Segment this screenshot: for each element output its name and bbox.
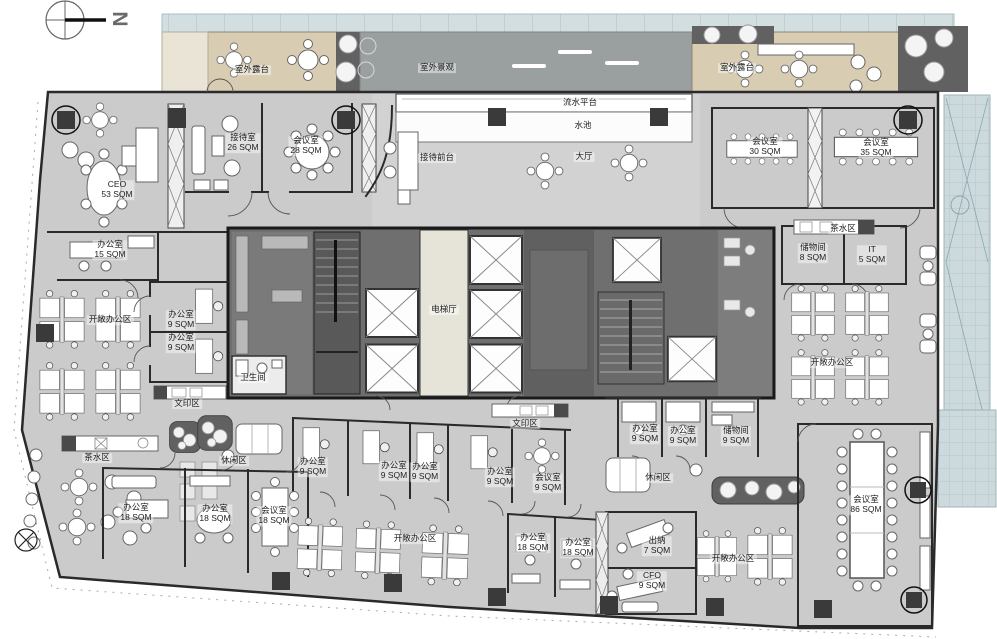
elevator-hall-floor [420,230,468,396]
elevator-5 [470,345,522,393]
water-feature [396,94,692,142]
outdoor-strip [162,14,954,32]
terrace-left [162,32,360,92]
elevator-3 [470,236,522,284]
service-elevator-1 [613,238,661,282]
floor-plan-drawing [0,0,997,639]
service-elevator-2 [668,337,716,382]
core [228,228,774,410]
north-arrow-icon [46,1,106,39]
north-letter: N [107,11,131,26]
floor-plan: 室外露台室外景观室外露台流水平台水池接待前台大厅接待室26 SQM会议室28 S… [0,0,997,639]
stair-east [598,292,664,384]
stair-west [314,232,360,394]
terrace-right [692,25,968,92]
elevator-2 [366,345,418,393]
restroom-west [232,356,286,394]
glass-facade [938,95,996,507]
elevator-4 [470,290,522,338]
tea-area-left [62,436,158,451]
elevator-1 [366,289,418,337]
print-area-left [154,386,226,399]
landscape-area [358,32,692,92]
